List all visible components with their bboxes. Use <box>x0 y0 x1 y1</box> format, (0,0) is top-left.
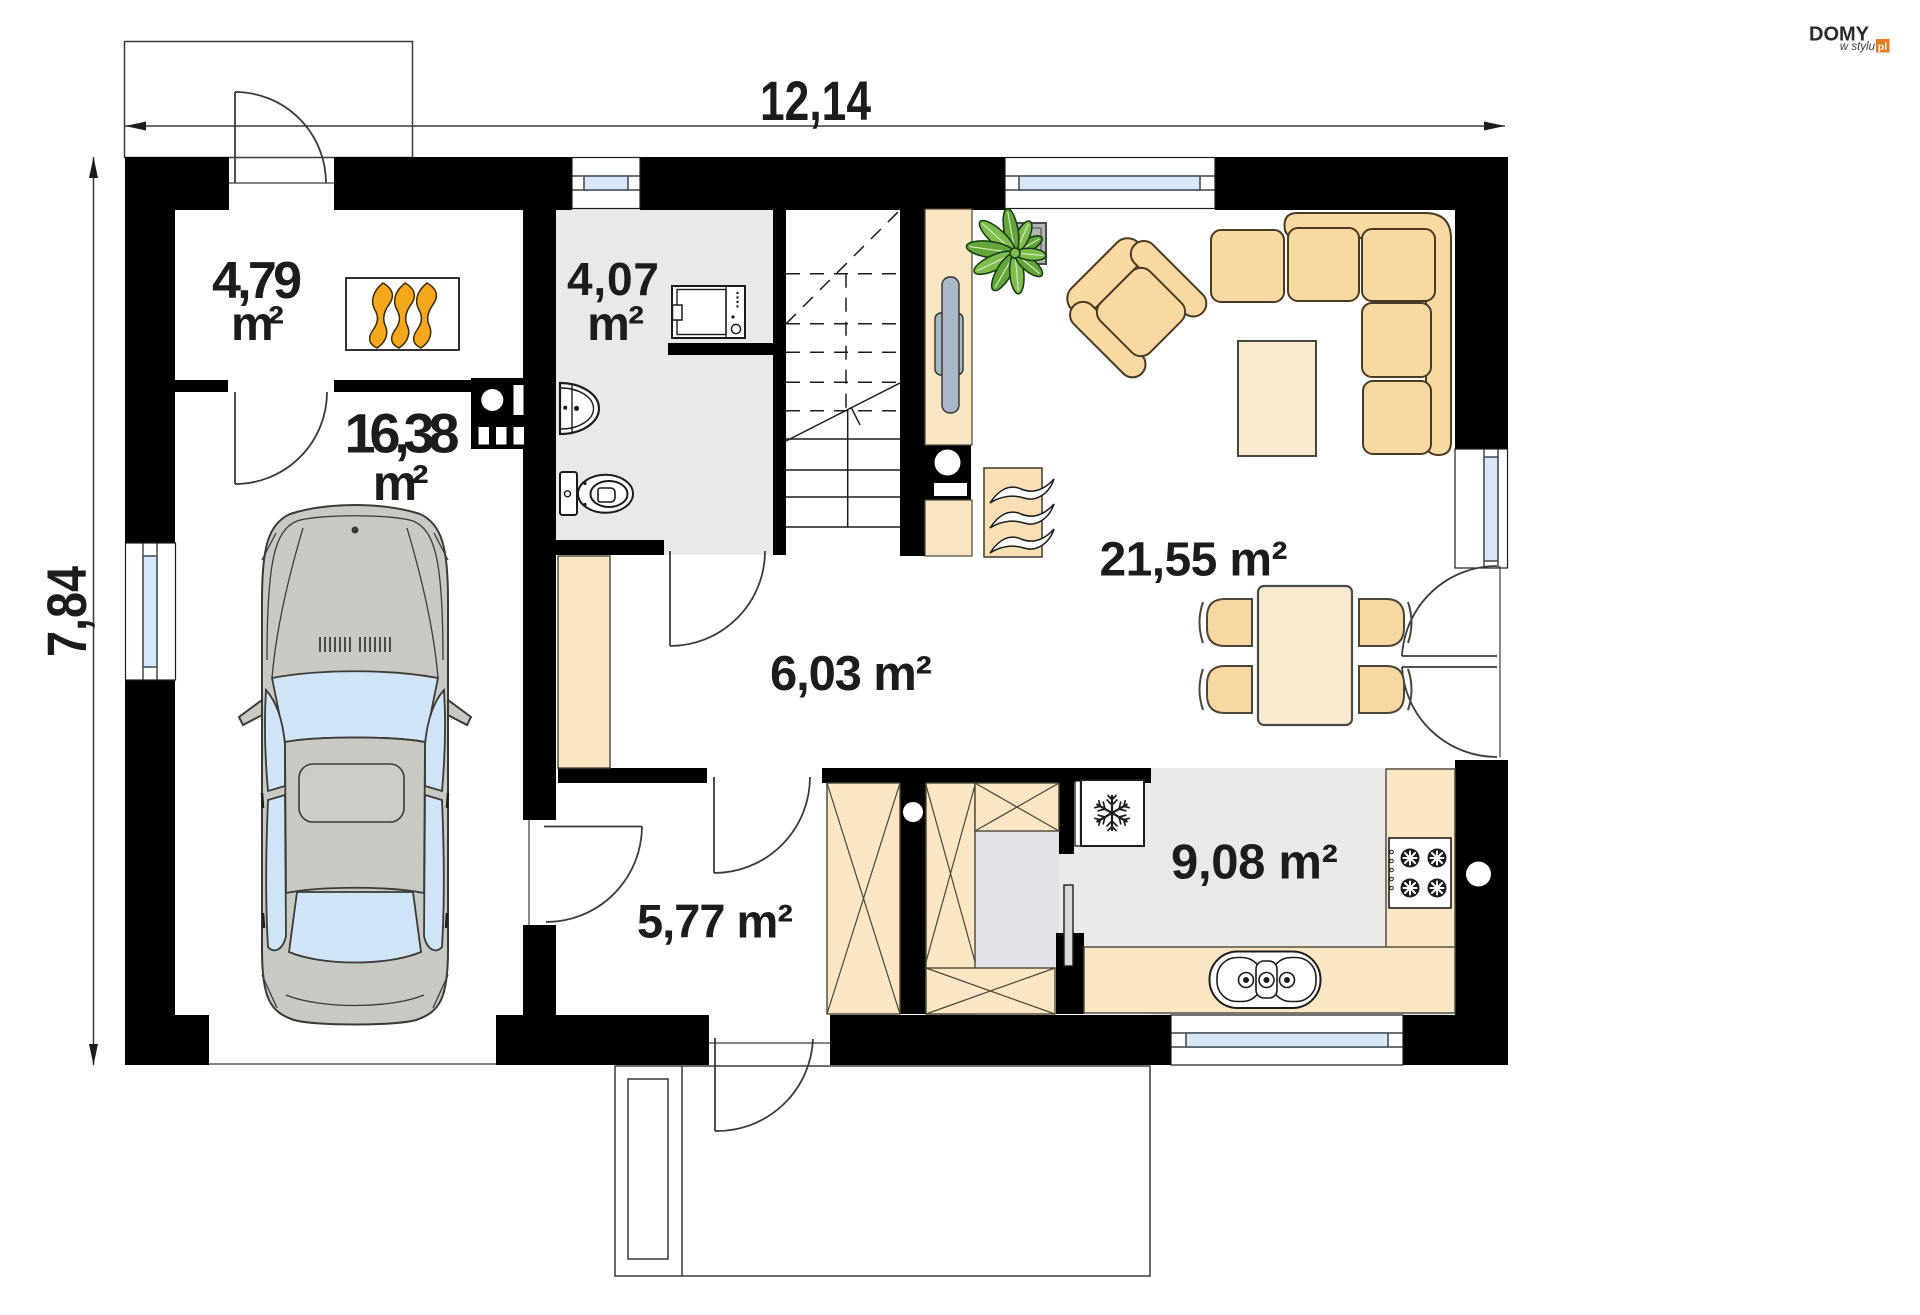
svg-text:m²: m² <box>587 298 644 351</box>
svg-text:7,84: 7,84 <box>35 566 98 657</box>
svg-text:21,55 m²: 21,55 m² <box>1100 534 1288 587</box>
svg-text:m²: m² <box>373 455 429 511</box>
svg-text:m²: m² <box>231 298 284 351</box>
svg-text:pl: pl <box>1878 41 1887 53</box>
svg-text:9,08 m²: 9,08 m² <box>1171 836 1338 890</box>
svg-text:6,03 m²: 6,03 m² <box>770 647 932 701</box>
svg-text:12,14: 12,14 <box>760 69 871 132</box>
svg-text:5,77 m²: 5,77 m² <box>637 895 793 948</box>
svg-text:w stylu: w stylu <box>1840 41 1876 53</box>
